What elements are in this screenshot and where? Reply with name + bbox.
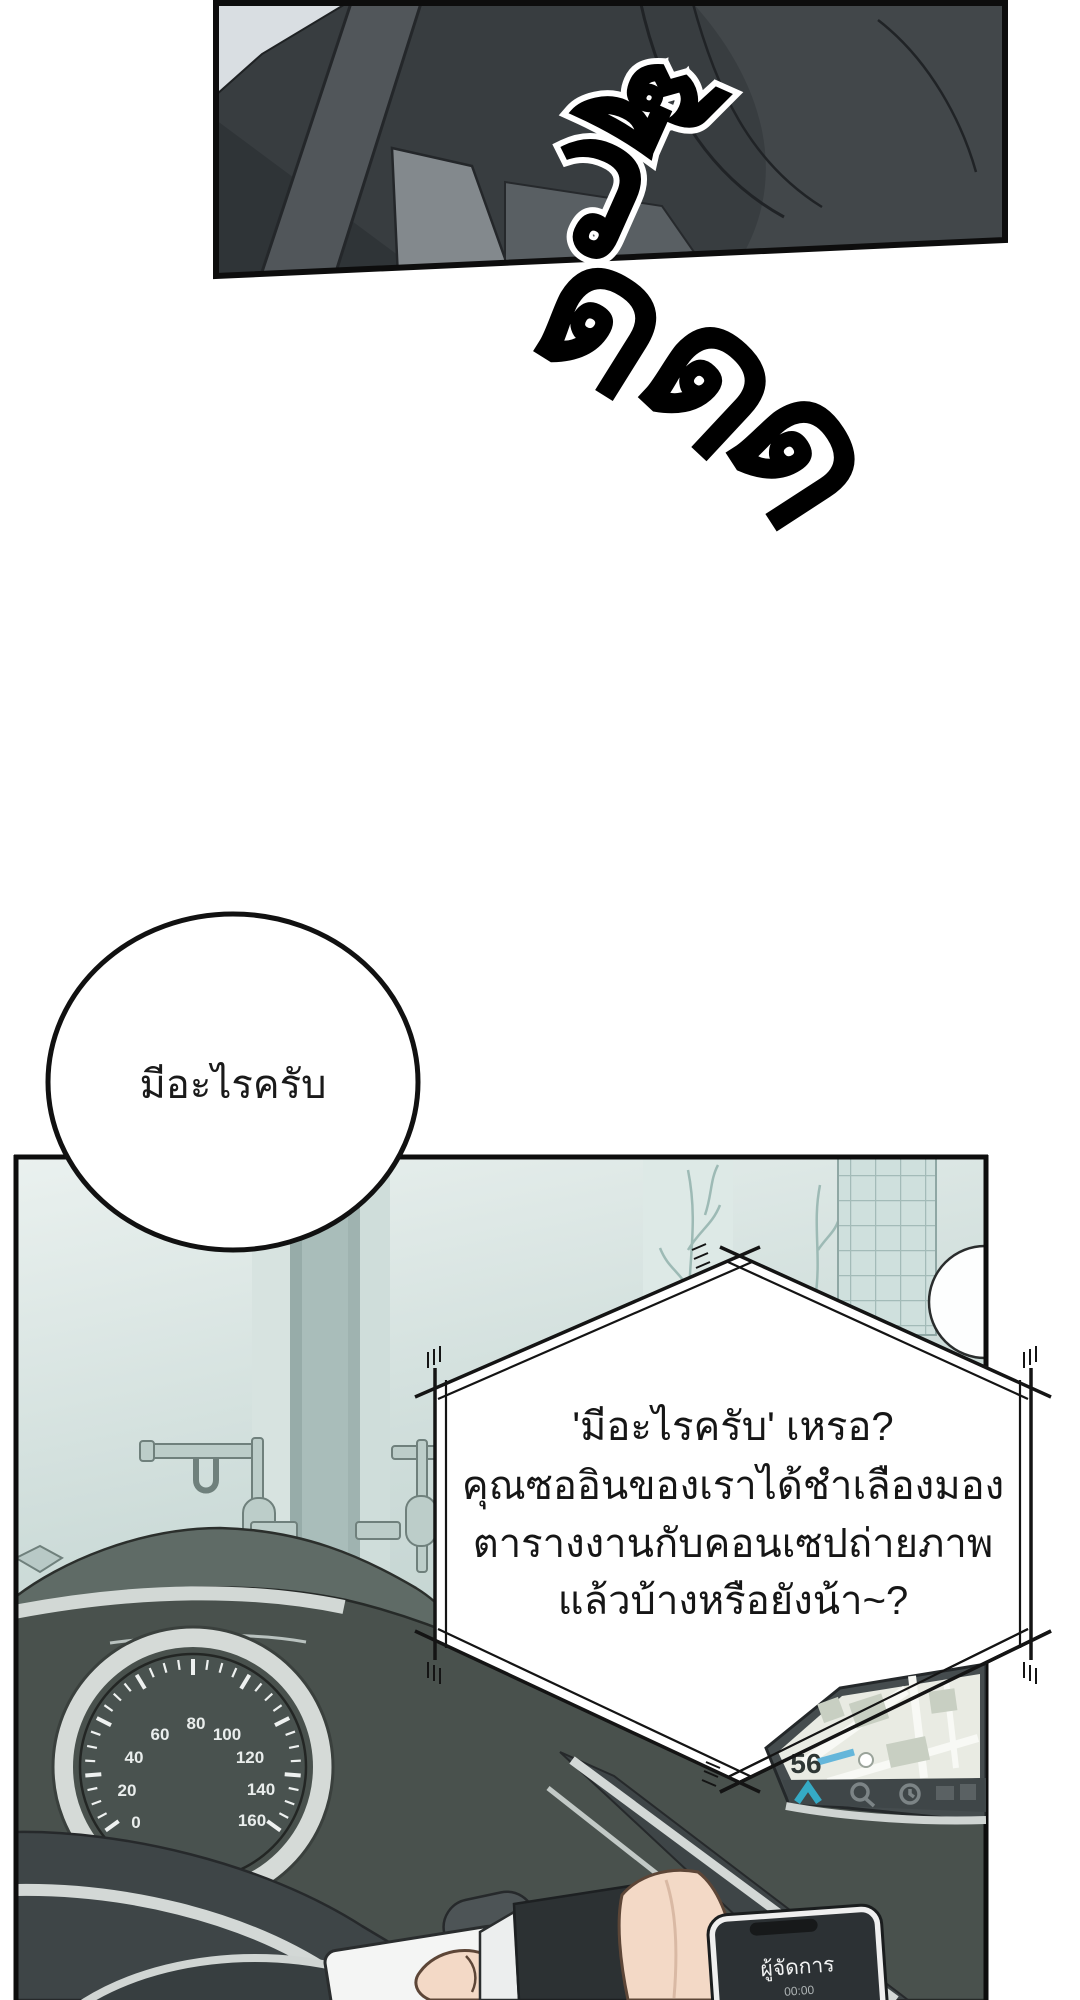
- gauge-tick: [291, 1761, 301, 1762]
- phone: ผู้จัดการ 00:00: [707, 1904, 890, 2000]
- comic-canvas: วี๊ ด ด ด: [0, 0, 1080, 2000]
- gauge-tick: [285, 1774, 301, 1775]
- gauge-tick: [85, 1774, 101, 1775]
- gauge-number: 20: [118, 1781, 137, 1800]
- comic-page: วี๊ ด ด ด: [0, 0, 1080, 2000]
- gauge-number: 120: [236, 1748, 264, 1767]
- hex-line-4: แล้วบ้างหรือยังน้า~?: [558, 1579, 908, 1623]
- gauge-tick: [206, 1660, 207, 1670]
- hex-line-2: คุณซออินของเราได้ชำเลืองมอง: [462, 1463, 1004, 1510]
- hex-line-3: ตารางงานกับคอนเซปถ่ายภาพ: [473, 1522, 994, 1566]
- gauge-number: 40: [125, 1748, 144, 1767]
- gauge-number: 0: [131, 1813, 140, 1832]
- nav-speed: 56: [790, 1748, 821, 1779]
- location-pin-icon: [859, 1753, 873, 1767]
- gauge-number: 80: [187, 1714, 206, 1733]
- speech-text: มีอะไรครับ: [139, 1062, 326, 1107]
- gauge-number: 60: [151, 1725, 170, 1744]
- speech-bubble-round: มีอะไรครับ: [48, 914, 418, 1250]
- gauge-tick: [178, 1660, 179, 1670]
- gauge-number: 100: [213, 1725, 241, 1744]
- gauge-number: 140: [247, 1780, 275, 1799]
- gauge-number: 160: [238, 1811, 266, 1830]
- nav-widget: [960, 1784, 976, 1800]
- hex-line-1: 'มีอะไรครับ' เหรอ?: [572, 1404, 893, 1449]
- nav-widget: [936, 1786, 954, 1800]
- gauge-tick: [85, 1761, 95, 1762]
- call-timer: 00:00: [784, 1983, 815, 1999]
